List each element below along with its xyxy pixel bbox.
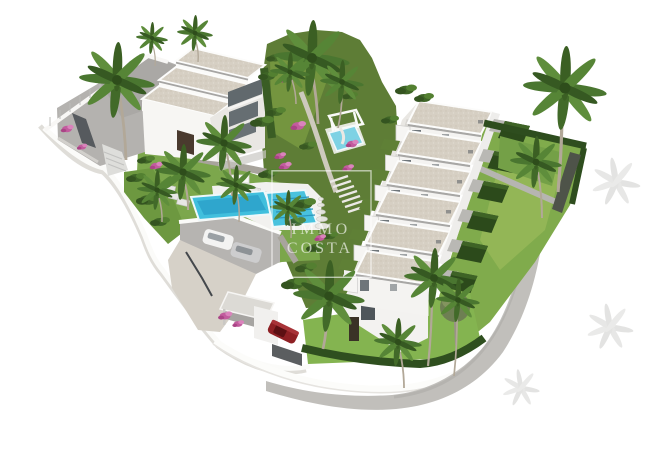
svg-text:IMMO: IMMO — [291, 221, 350, 238]
svg-text:COSTA: COSTA — [287, 240, 353, 257]
